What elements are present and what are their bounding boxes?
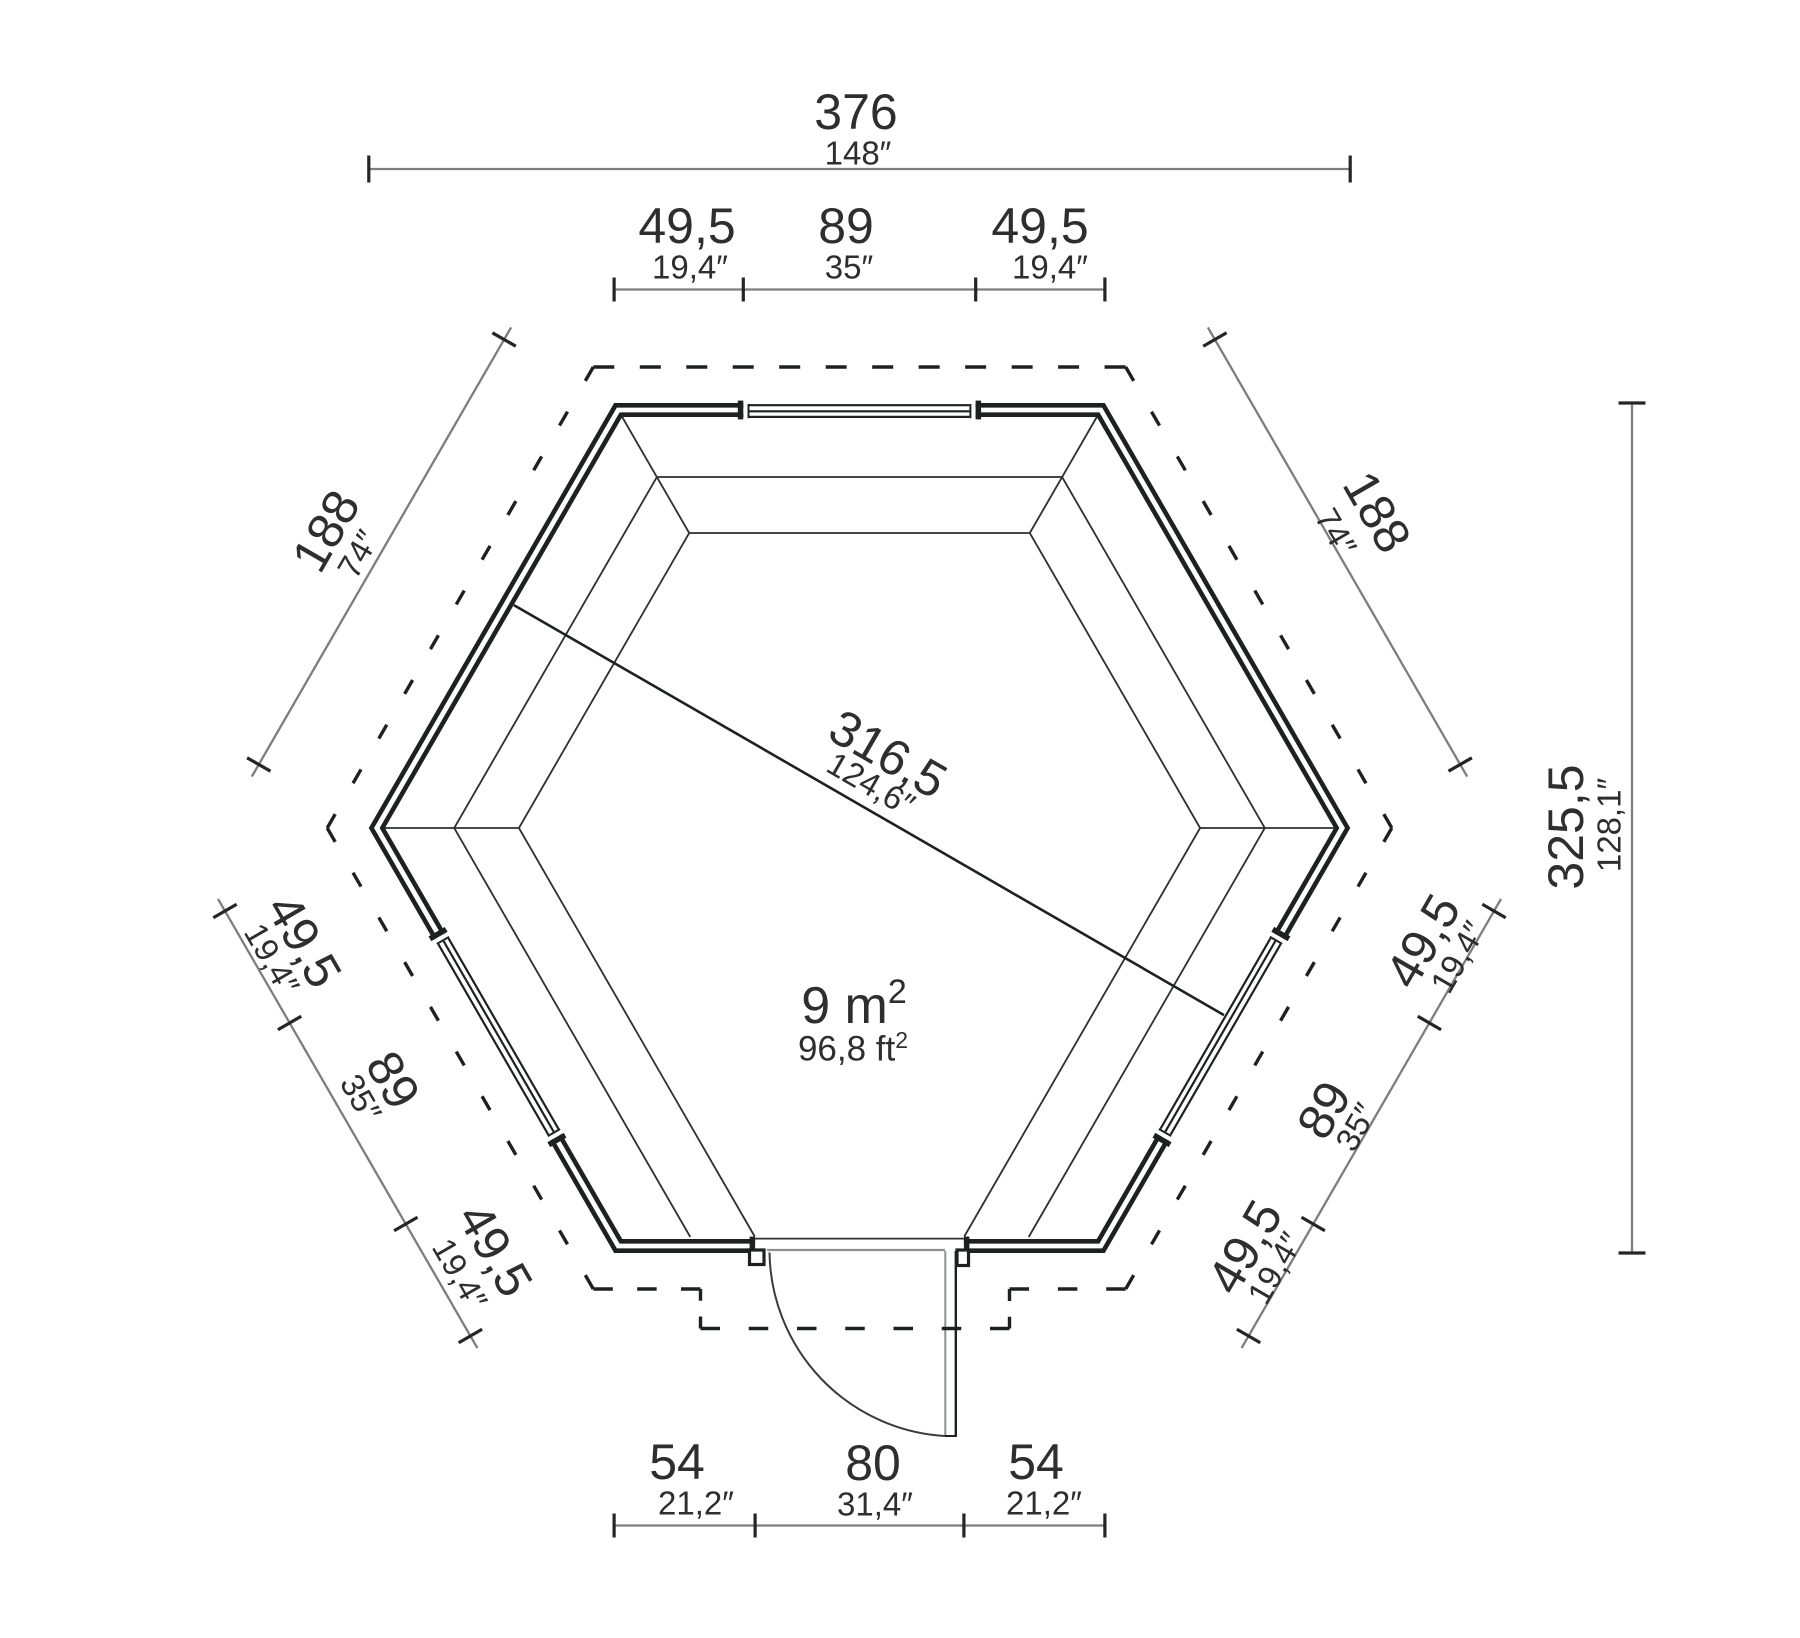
svg-text:35″: 35″ xyxy=(825,249,874,286)
svg-text:325,5: 325,5 xyxy=(1538,764,1594,889)
svg-text:19,4″: 19,4″ xyxy=(1012,249,1088,286)
svg-text:54: 54 xyxy=(1008,1434,1064,1490)
svg-text:21,2″: 21,2″ xyxy=(658,1485,734,1522)
svg-text:19,4″: 19,4″ xyxy=(652,249,728,286)
svg-text:54: 54 xyxy=(649,1434,705,1490)
svg-text:21,2″: 21,2″ xyxy=(1006,1485,1082,1522)
svg-text:49,5: 49,5 xyxy=(991,198,1088,254)
svg-text:128,1″: 128,1″ xyxy=(1591,778,1628,873)
svg-text:148″: 148″ xyxy=(825,135,892,172)
svg-text:49,5: 49,5 xyxy=(638,198,735,254)
svg-text:96,8 ft2: 96,8 ft2 xyxy=(798,1027,908,1069)
svg-text:89: 89 xyxy=(818,198,874,254)
svg-text:80: 80 xyxy=(845,1435,901,1491)
svg-text:31,4″: 31,4″ xyxy=(837,1486,913,1523)
svg-text:376: 376 xyxy=(814,84,897,140)
